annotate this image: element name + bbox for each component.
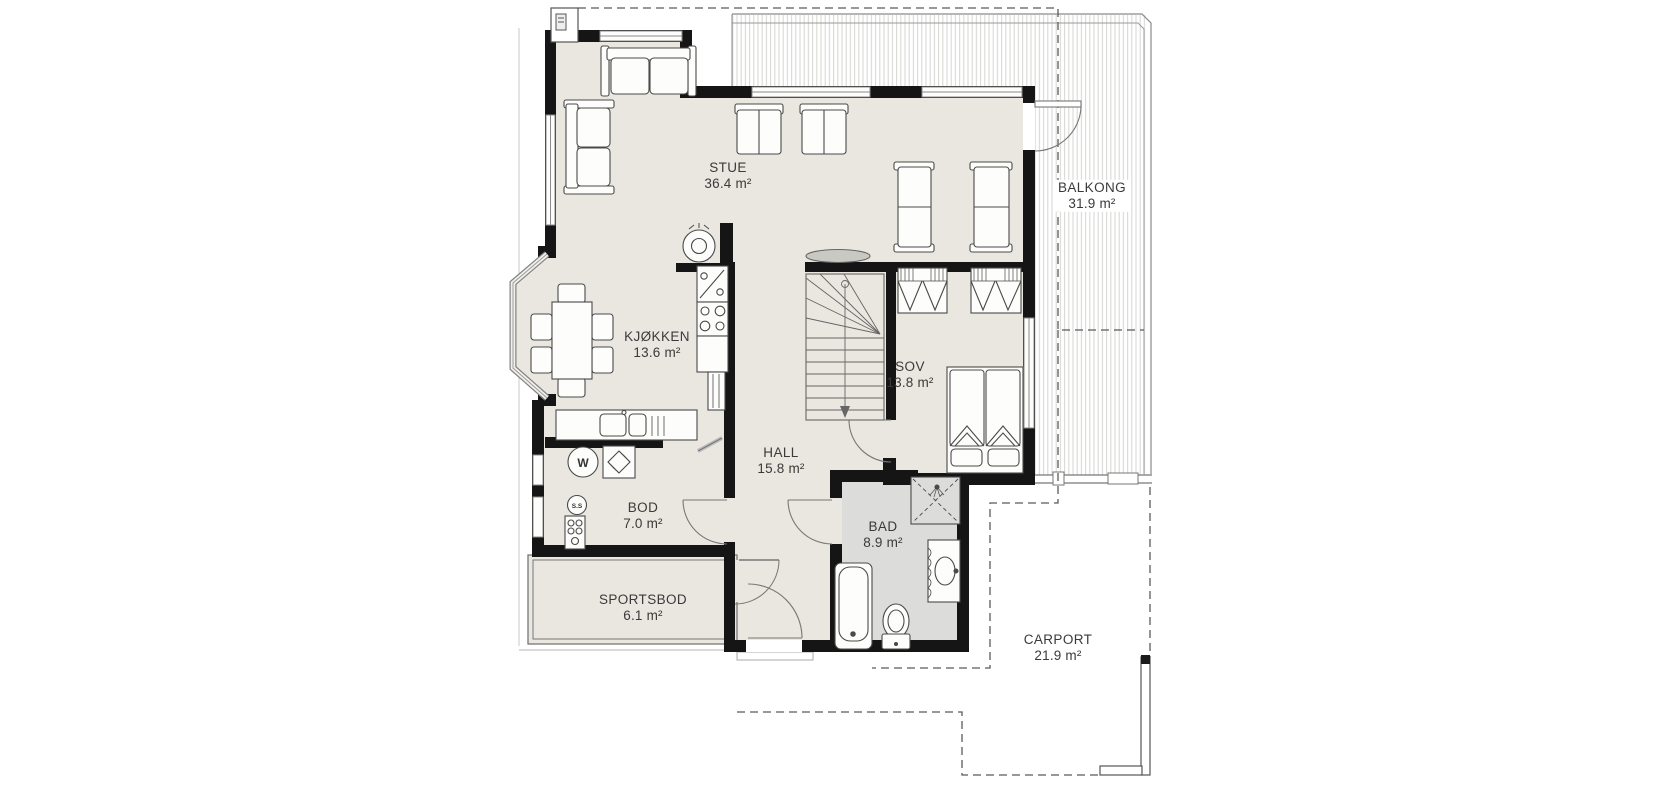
- floor-plan-drawing: W S.S: [0, 0, 1670, 800]
- chimney: [551, 8, 578, 42]
- room-name: HALL: [757, 445, 804, 461]
- room-name: BAD: [863, 519, 902, 535]
- room-name: KJØKKEN: [624, 329, 690, 345]
- room-label-bod: BOD 7.0 m²: [623, 500, 662, 532]
- shower: [911, 477, 960, 524]
- water-heater: W: [568, 447, 598, 477]
- ss-label: S.S: [572, 503, 583, 510]
- room-label-sportsbod: SPORTSBOD 6.1 m²: [599, 592, 687, 624]
- armchair-2: [800, 104, 848, 154]
- utility-sink: [565, 516, 585, 549]
- floor-plan-canvas: W S.S STUE 36.4 m² KJØKKEN 13.6 m² BALKO…: [0, 0, 1670, 800]
- room-label-bad: BAD 8.9 m²: [863, 519, 902, 551]
- toilet: [882, 604, 910, 649]
- room-label-hall: HALL 15.8 m²: [757, 445, 804, 477]
- sofa-top: [601, 46, 696, 96]
- loveseat-right-1: [894, 162, 934, 252]
- armchair-1: [735, 104, 783, 154]
- room-label-sov: SOV 13.8 m²: [886, 359, 933, 391]
- kitchen-counter: [556, 410, 697, 440]
- double-bed: [947, 367, 1023, 473]
- vanity-sink: [928, 540, 960, 602]
- carport-wall: [1100, 655, 1150, 775]
- room-area: 7.0 m²: [623, 516, 662, 532]
- wardrobe-1: [898, 268, 947, 313]
- room-area: 31.9 m²: [1058, 196, 1126, 212]
- ss-fixture: S.S: [568, 496, 587, 515]
- wardrobe-2: [971, 268, 1021, 313]
- room-label-balkong: BALKONG 31.9 m²: [1055, 180, 1129, 212]
- room-area: 8.9 m²: [863, 535, 902, 551]
- sideboard: [806, 250, 870, 263]
- room-name: CARPORT: [1024, 632, 1093, 648]
- cooktop: [697, 302, 728, 336]
- room-name: SPORTSBOD: [599, 592, 687, 608]
- room-area: 15.8 m²: [757, 461, 804, 477]
- water-heater-label: W: [577, 456, 589, 470]
- oven-cabinet: [697, 266, 728, 302]
- sofa-left: [564, 100, 614, 194]
- room-name: STUE: [704, 160, 751, 176]
- bathtub: [835, 563, 872, 649]
- loveseat-right-2: [970, 162, 1012, 252]
- room-name: BOD: [623, 500, 662, 516]
- room-area: 6.1 m²: [599, 608, 687, 624]
- fridge: [708, 372, 725, 410]
- room-area: 36.4 m²: [704, 176, 751, 192]
- room-name: BALKONG: [1058, 180, 1126, 196]
- washing-machine: [603, 446, 635, 478]
- room-area: 21.9 m²: [1024, 648, 1093, 664]
- room-label-stue: STUE 36.4 m²: [704, 160, 751, 192]
- kitchen-base-cabinet: [697, 336, 728, 372]
- room-area: 13.8 m²: [886, 375, 933, 391]
- room-label-kjokken: KJØKKEN 13.6 m²: [624, 329, 690, 361]
- room-name: SOV: [886, 359, 933, 375]
- room-label-carport: CARPORT 21.9 m²: [1024, 632, 1093, 664]
- room-area: 13.6 m²: [624, 345, 690, 361]
